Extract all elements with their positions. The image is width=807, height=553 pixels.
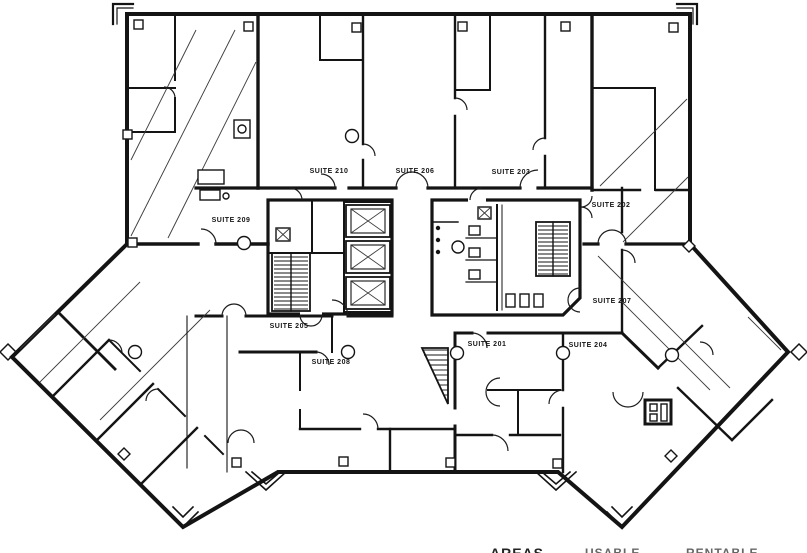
legend-usable-label: USABLE xyxy=(585,546,640,553)
core-right xyxy=(432,198,580,315)
right-wing xyxy=(598,99,772,440)
suite-labels: SUITE 210 SUITE 206 SUITE 203 SUITE 202 … xyxy=(212,168,632,366)
floor-plan-drawing: SUITE 210 SUITE 206 SUITE 203 SUITE 202 … xyxy=(0,0,807,553)
suite-205-label: SUITE 205 xyxy=(270,323,309,330)
suite-201-label: SUITE 201 xyxy=(468,341,507,348)
suite-207-label: SUITE 207 xyxy=(593,298,632,305)
suite-210-label: SUITE 210 xyxy=(310,168,349,175)
suite-203-label: SUITE 203 xyxy=(492,169,531,176)
stairwell-right xyxy=(536,222,570,276)
area-legend: AREAS USABLE RENTABLE xyxy=(490,545,758,553)
suite-206-label: SUITE 206 xyxy=(396,168,435,175)
stairwell-left xyxy=(272,253,310,311)
suite-209-block xyxy=(127,30,268,244)
elevator-cell xyxy=(346,277,390,309)
central-stair xyxy=(422,348,448,404)
suite-202-label: SUITE 202 xyxy=(592,202,631,209)
left-wing xyxy=(40,282,227,485)
elevator-cell xyxy=(346,205,390,237)
building-outline xyxy=(0,4,807,527)
restrooms xyxy=(432,205,543,310)
elevator-bank xyxy=(344,202,392,312)
elevator-cell xyxy=(346,241,390,273)
suite-208-label: SUITE 208 xyxy=(312,359,351,366)
suite-209-label: SUITE 209 xyxy=(212,217,251,224)
legend-areas-label: AREAS xyxy=(490,545,544,553)
floor-plan-canvas: SUITE 210 SUITE 206 SUITE 203 SUITE 202 … xyxy=(0,0,807,553)
top-offices-walls xyxy=(127,14,690,190)
legend-rentable-label: RENTABLE xyxy=(686,546,758,553)
core-left xyxy=(268,200,392,317)
suite-204-label: SUITE 204 xyxy=(569,342,608,349)
